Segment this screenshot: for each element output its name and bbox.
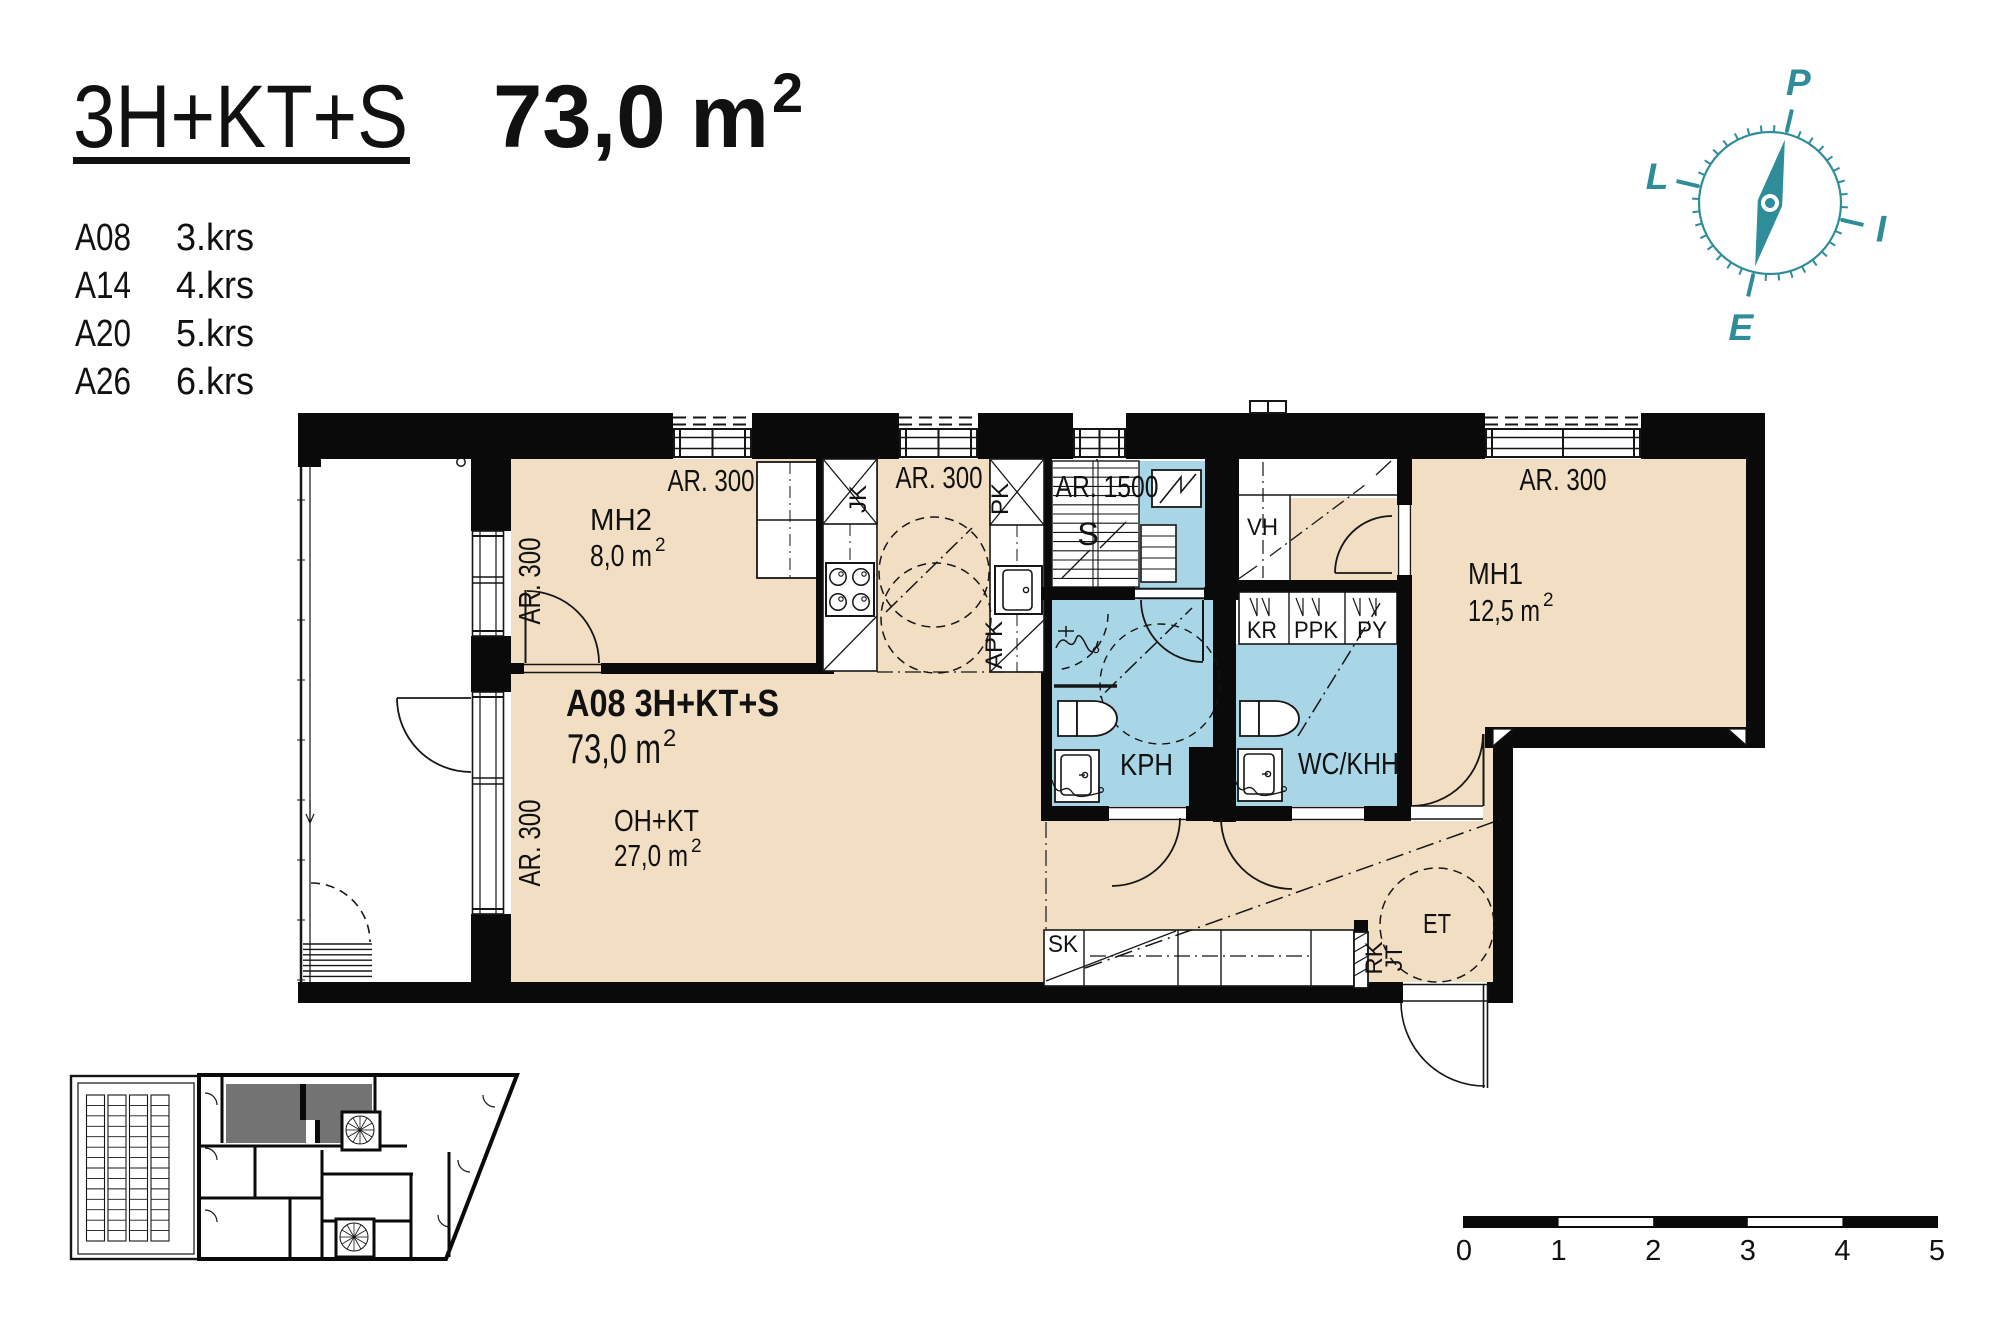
svg-text:KR: KR bbox=[1247, 617, 1277, 644]
svg-text:I: I bbox=[1876, 209, 1887, 250]
svg-text:PK: PK bbox=[987, 483, 1014, 515]
svg-text:OH+KT: OH+KT bbox=[614, 803, 699, 838]
svg-text:AR. 300: AR. 300 bbox=[512, 538, 547, 625]
svg-text:L: L bbox=[1646, 156, 1669, 197]
svg-text:ET: ET bbox=[1423, 908, 1451, 939]
svg-text:S: S bbox=[1077, 516, 1098, 552]
svg-text:4: 4 bbox=[1834, 1235, 1850, 1267]
svg-text:A08 3H+KT+S: A08 3H+KT+S bbox=[566, 683, 779, 725]
svg-text:AR. 300: AR. 300 bbox=[896, 460, 983, 495]
svg-text:A14: A14 bbox=[75, 265, 131, 307]
svg-text:5: 5 bbox=[1929, 1235, 1945, 1267]
svg-text:4.krs: 4.krs bbox=[176, 265, 254, 307]
svg-text:5.krs: 5.krs bbox=[176, 313, 254, 355]
svg-text:SK: SK bbox=[1048, 931, 1078, 958]
svg-text:P: P bbox=[1786, 62, 1811, 103]
svg-text:27,0 m: 27,0 m bbox=[614, 838, 688, 873]
svg-text:AR. 300: AR. 300 bbox=[1520, 462, 1607, 497]
svg-text:2: 2 bbox=[1543, 590, 1554, 611]
svg-text:APK: APK bbox=[981, 621, 1008, 669]
svg-text:2: 2 bbox=[1645, 1235, 1661, 1267]
svg-text:12,5 m: 12,5 m bbox=[1468, 593, 1540, 628]
svg-text:KPH: KPH bbox=[1120, 747, 1173, 782]
svg-text:VH: VH bbox=[1247, 514, 1278, 541]
svg-text:AR. 300: AR. 300 bbox=[512, 800, 547, 887]
svg-text:A08: A08 bbox=[75, 217, 131, 259]
svg-text:0: 0 bbox=[1456, 1235, 1472, 1267]
svg-text:A20: A20 bbox=[75, 313, 131, 355]
svg-text:2: 2 bbox=[691, 836, 702, 857]
svg-text:2: 2 bbox=[663, 725, 676, 752]
svg-text:73,0 m: 73,0 m bbox=[493, 66, 769, 166]
svg-text:E: E bbox=[1728, 307, 1754, 348]
svg-text:AR. 300: AR. 300 bbox=[668, 463, 755, 498]
svg-text:WC/KHH: WC/KHH bbox=[1298, 746, 1399, 781]
svg-text:6.krs: 6.krs bbox=[176, 361, 254, 403]
svg-text:AR. 1500: AR. 1500 bbox=[1056, 469, 1159, 504]
svg-text:8,0 m: 8,0 m bbox=[590, 538, 652, 573]
svg-text:73,0 m: 73,0 m bbox=[567, 725, 661, 772]
svg-text:PPK: PPK bbox=[1294, 617, 1338, 644]
svg-text:MH1: MH1 bbox=[1468, 556, 1523, 591]
svg-text:PY: PY bbox=[1357, 617, 1387, 644]
svg-text:3.krs: 3.krs bbox=[176, 217, 254, 259]
svg-text:3: 3 bbox=[1740, 1235, 1756, 1267]
svg-text:JK: JK bbox=[845, 485, 872, 513]
svg-text:MH2: MH2 bbox=[590, 502, 652, 537]
svg-text:2: 2 bbox=[655, 535, 666, 556]
svg-text:2: 2 bbox=[772, 61, 803, 124]
svg-text:1: 1 bbox=[1551, 1235, 1567, 1267]
svg-text:A26: A26 bbox=[75, 361, 131, 403]
svg-text:3H+KT+S: 3H+KT+S bbox=[73, 66, 408, 166]
